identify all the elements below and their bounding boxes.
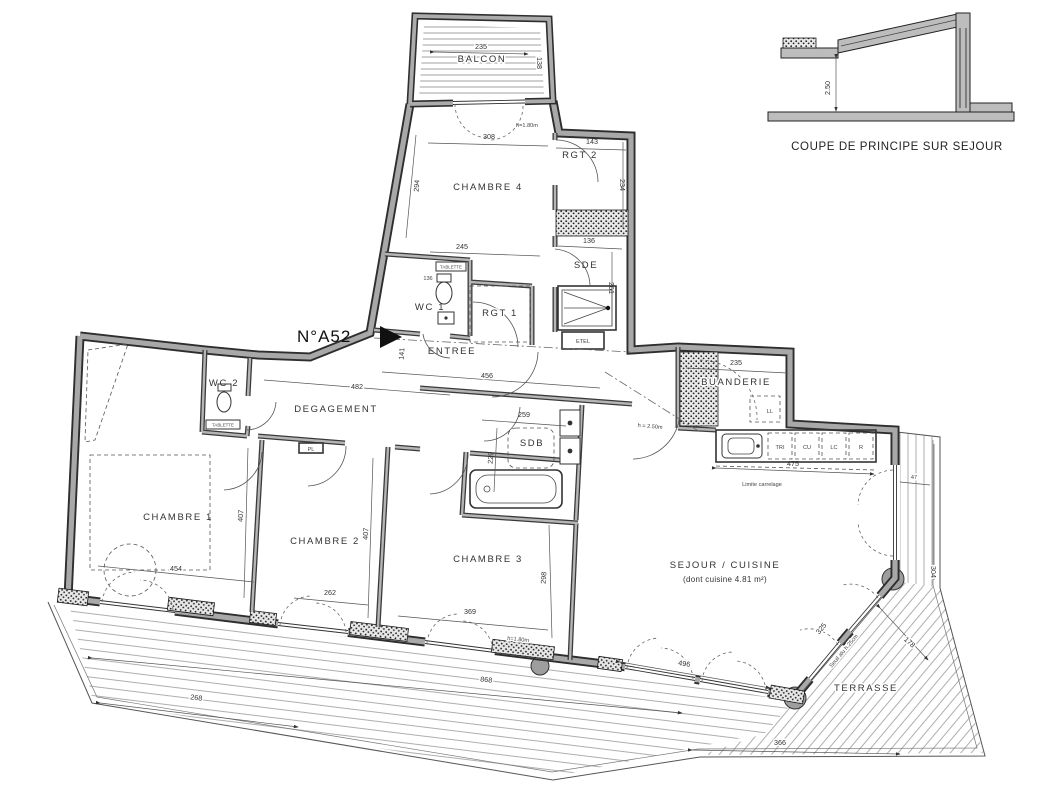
unit-number-text: N°A52: [297, 327, 351, 346]
floorplan-sheet: 2.50 COUPE DE PRINCIPE SUR SEJOUR: [0, 0, 1053, 800]
dim-terr-366: 366: [774, 738, 786, 747]
dim-wc1-w: 136: [423, 276, 432, 282]
label-tri: TRI: [775, 445, 784, 451]
label-sejour-sub: (dont cuisine 4.81 m²): [683, 575, 767, 584]
label-r: R: [859, 445, 863, 451]
label-degagement: DEGAGEMENT: [294, 404, 378, 415]
label-lc: LC: [830, 445, 837, 451]
dim-ch4-w: 245: [456, 242, 468, 251]
sde-shower-drain: [606, 306, 610, 310]
duct-hatch-rgt2-sde: [556, 210, 628, 236]
section-parapet-hatch: [783, 38, 816, 48]
label-ll: LL: [767, 409, 773, 415]
dim-ch3-h: 298: [539, 572, 549, 585]
dim-entree-h: 141: [397, 348, 407, 361]
section-detail: 2.50 COUPE DE PRINCIPE SUR SEJOUR: [768, 13, 1014, 153]
dim-cuisine-w: 475: [787, 459, 799, 468]
label-buanderie: BUANDERIE: [701, 377, 771, 388]
label-sejour: SEJOUR / CUISINE: [670, 560, 781, 571]
sdb-door-arc: [484, 407, 520, 441]
wc1-toilet: [436, 282, 452, 304]
room-labels: BALCON CHAMBRE 4 RGT 2 SDE WC 1 RGT 1 ET…: [143, 54, 898, 694]
sejour-door-arc: [633, 412, 680, 459]
dim-entree-w: 456: [481, 371, 493, 380]
ann-h250: h = 2.50m: [637, 423, 663, 431]
section-right-base: [970, 103, 1012, 112]
label-terrasse: TERRASSE: [834, 683, 898, 694]
dim-sdb-w: 259: [518, 410, 530, 419]
chambre1-door-arc: [224, 452, 262, 490]
dim-ch4-h: 294: [412, 180, 422, 193]
label-chambre4: CHAMBRE 4: [453, 182, 523, 193]
dim-sde-w: 136: [583, 236, 595, 245]
buanderie-ll-box: [750, 396, 780, 422]
dim-buanderie-w: 235: [730, 358, 742, 367]
unit-number: N°A52: [297, 326, 402, 348]
sdb-tub-drain: [484, 486, 490, 492]
dim-terr-304: 304: [929, 566, 938, 578]
label-tablette-wc2: TABLETTE: [212, 423, 234, 428]
dim-ch2-w: 262: [324, 588, 336, 597]
dim-terr-868: 868: [480, 674, 493, 684]
wc1-cistern: [437, 274, 451, 282]
label-wc2: WC 2: [209, 378, 239, 389]
dim-ch1-h: 407: [236, 510, 246, 523]
dim-sde-h: 261: [607, 282, 616, 294]
dim-balcon-w: 235: [475, 42, 487, 51]
dim-rgt2-w: 143: [586, 137, 598, 146]
wc2-door-arc: [247, 402, 276, 430]
section-roof-line: [841, 19, 960, 46]
dim-sdb-h: 229: [486, 452, 496, 465]
section-balcony-slab: [781, 48, 838, 58]
dim-ch3-w: 369: [464, 607, 476, 616]
dim-ch2-h: 407: [361, 528, 371, 541]
dim-balcon-d: 138: [535, 57, 544, 69]
section-right-wall: [956, 13, 970, 112]
dim-terr-496: 496: [678, 658, 691, 669]
section-ground-slab: [768, 112, 1014, 121]
dim-ch1-w: 454: [170, 564, 182, 573]
wc2-toilet: [217, 392, 231, 412]
ceiling-limit-line: [374, 338, 630, 352]
label-rgt1: RGT 1: [482, 308, 518, 319]
label-balcon: BALCON: [458, 54, 507, 65]
label-rgt2: RGT 2: [562, 150, 598, 161]
dim-terr-325: 325: [814, 621, 829, 636]
label-tablette-wc1: TABLETTE: [440, 265, 462, 270]
dim-terr-268: 268: [190, 692, 203, 702]
floorplan-drawing: 2.50 COUPE DE PRINCIPE SUR SEJOUR: [0, 0, 1053, 800]
facade-sliver: [85, 344, 128, 442]
section-height-dim: 2.50: [823, 81, 832, 95]
ann-limite-carrelage: Limite carrelage: [742, 482, 782, 488]
label-cu: CU: [803, 445, 811, 451]
dim-deg-w: 482: [351, 382, 363, 391]
terrace-deck-south: [68, 600, 795, 777]
entree-door-arc: [492, 352, 538, 397]
rgt2-door-arc: [556, 140, 598, 182]
label-sde: SDE: [574, 260, 598, 271]
label-chambre2: CHAMBRE 2: [290, 536, 360, 547]
dim-terr-47: 47: [911, 475, 917, 481]
dim-rgt2-h: 234: [618, 179, 627, 191]
label-sdb: SDB: [520, 438, 544, 449]
label-entree: ENTREE: [428, 346, 476, 357]
label-chambre1: CHAMBRE 1: [143, 512, 213, 523]
section-caption: COUPE DE PRINCIPE SUR SEJOUR: [791, 141, 1003, 153]
label-pl: PL: [308, 447, 315, 453]
terrace-deck-east: [897, 432, 940, 588]
label-etel: ETEL: [576, 339, 590, 345]
label-chambre3: CHAMBRE 3: [453, 554, 523, 565]
ann-h180-balcon: h=1.80m: [516, 123, 538, 129]
dim-balcon-door: 308: [483, 132, 495, 141]
label-wc1: WC 1: [415, 302, 445, 313]
buanderie-hatch: [680, 352, 718, 426]
